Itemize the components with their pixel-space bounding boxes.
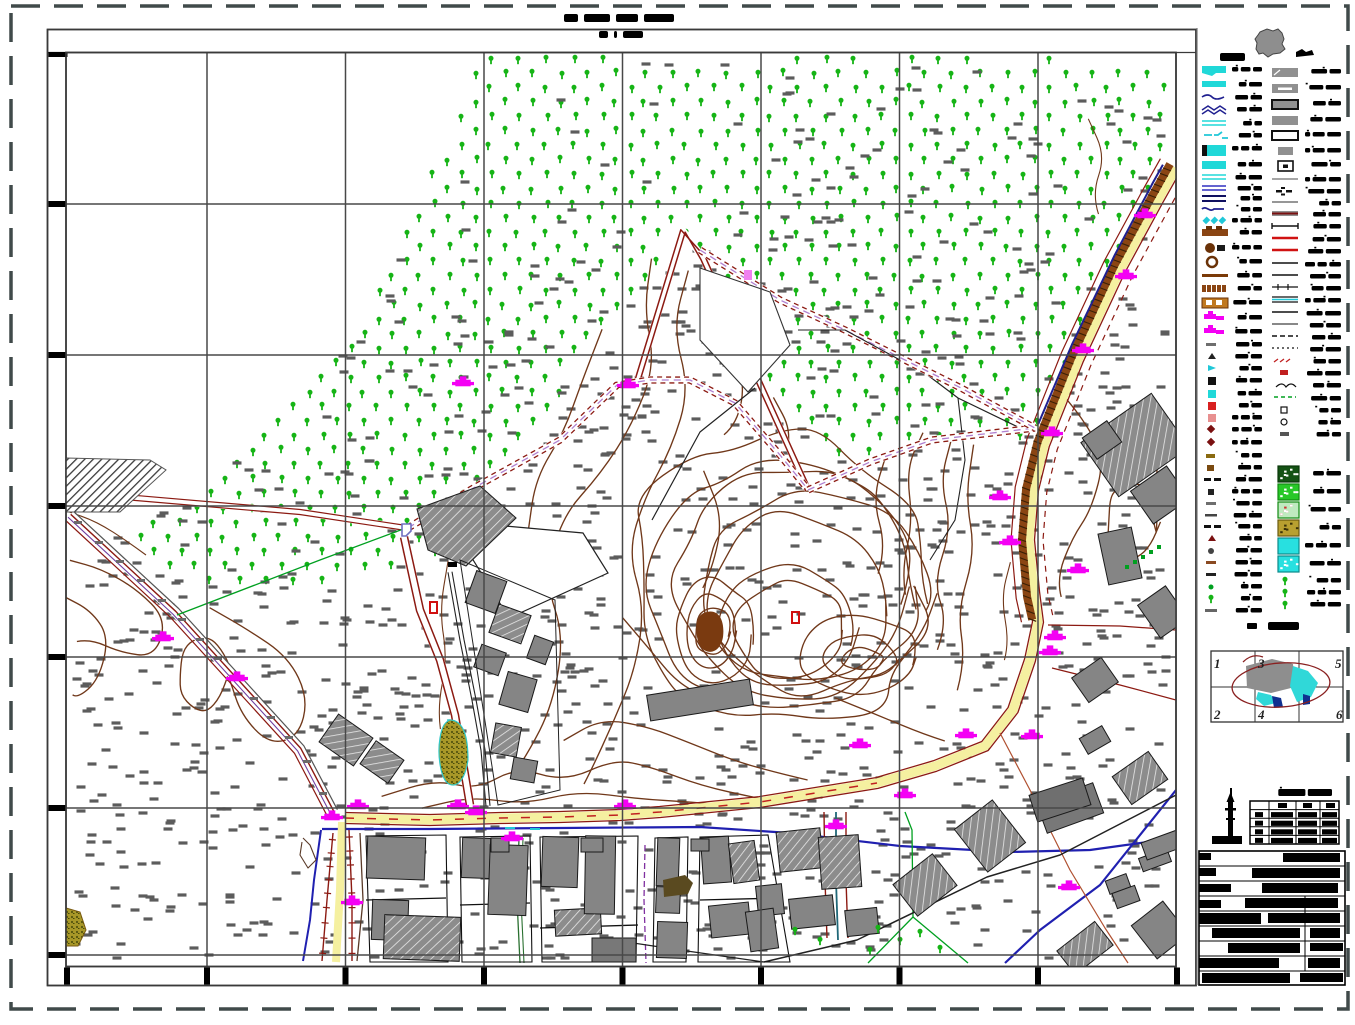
svg-text:3: 3 (1257, 656, 1265, 671)
svg-text:6: 6 (1336, 707, 1343, 722)
svg-text:4: 4 (1257, 707, 1265, 722)
svg-text:2: 2 (1213, 707, 1221, 722)
svg-text:5: 5 (1335, 656, 1342, 671)
svg-text:1: 1 (1214, 656, 1221, 671)
